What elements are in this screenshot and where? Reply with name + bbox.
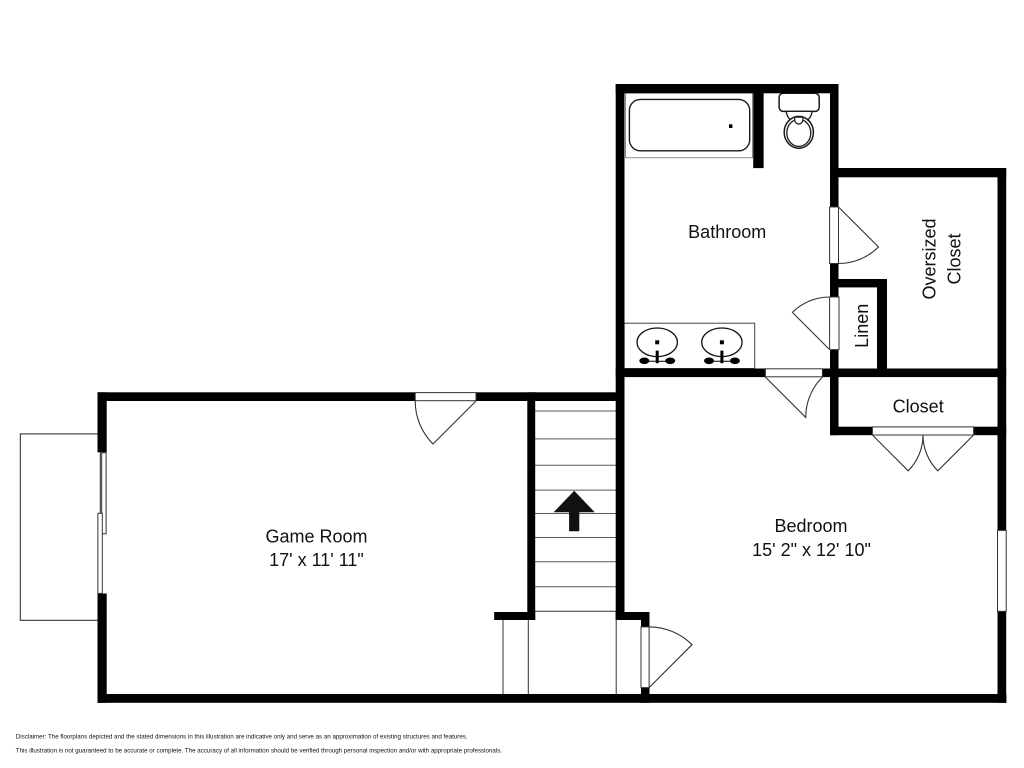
svg-text:This illustration is not guara: This illustration is not guaranteed to b… [16, 747, 503, 754]
svg-text:Bathroom: Bathroom [688, 222, 766, 242]
svg-text:Closet: Closet [893, 396, 944, 416]
svg-text:Game Room: Game Room [265, 527, 367, 547]
svg-text:Closet: Closet [944, 233, 964, 284]
svg-text:15' 2" x 12' 10": 15' 2" x 12' 10" [752, 540, 871, 560]
svg-text:Bedroom: Bedroom [774, 516, 847, 536]
svg-text:17' x 11' 11": 17' x 11' 11" [269, 550, 364, 570]
svg-text:Oversized: Oversized [920, 218, 940, 299]
svg-text:Disclaimer: The floorplans dep: Disclaimer: The floorplans depicted and … [16, 733, 468, 740]
svg-text:Linen: Linen [852, 304, 872, 348]
